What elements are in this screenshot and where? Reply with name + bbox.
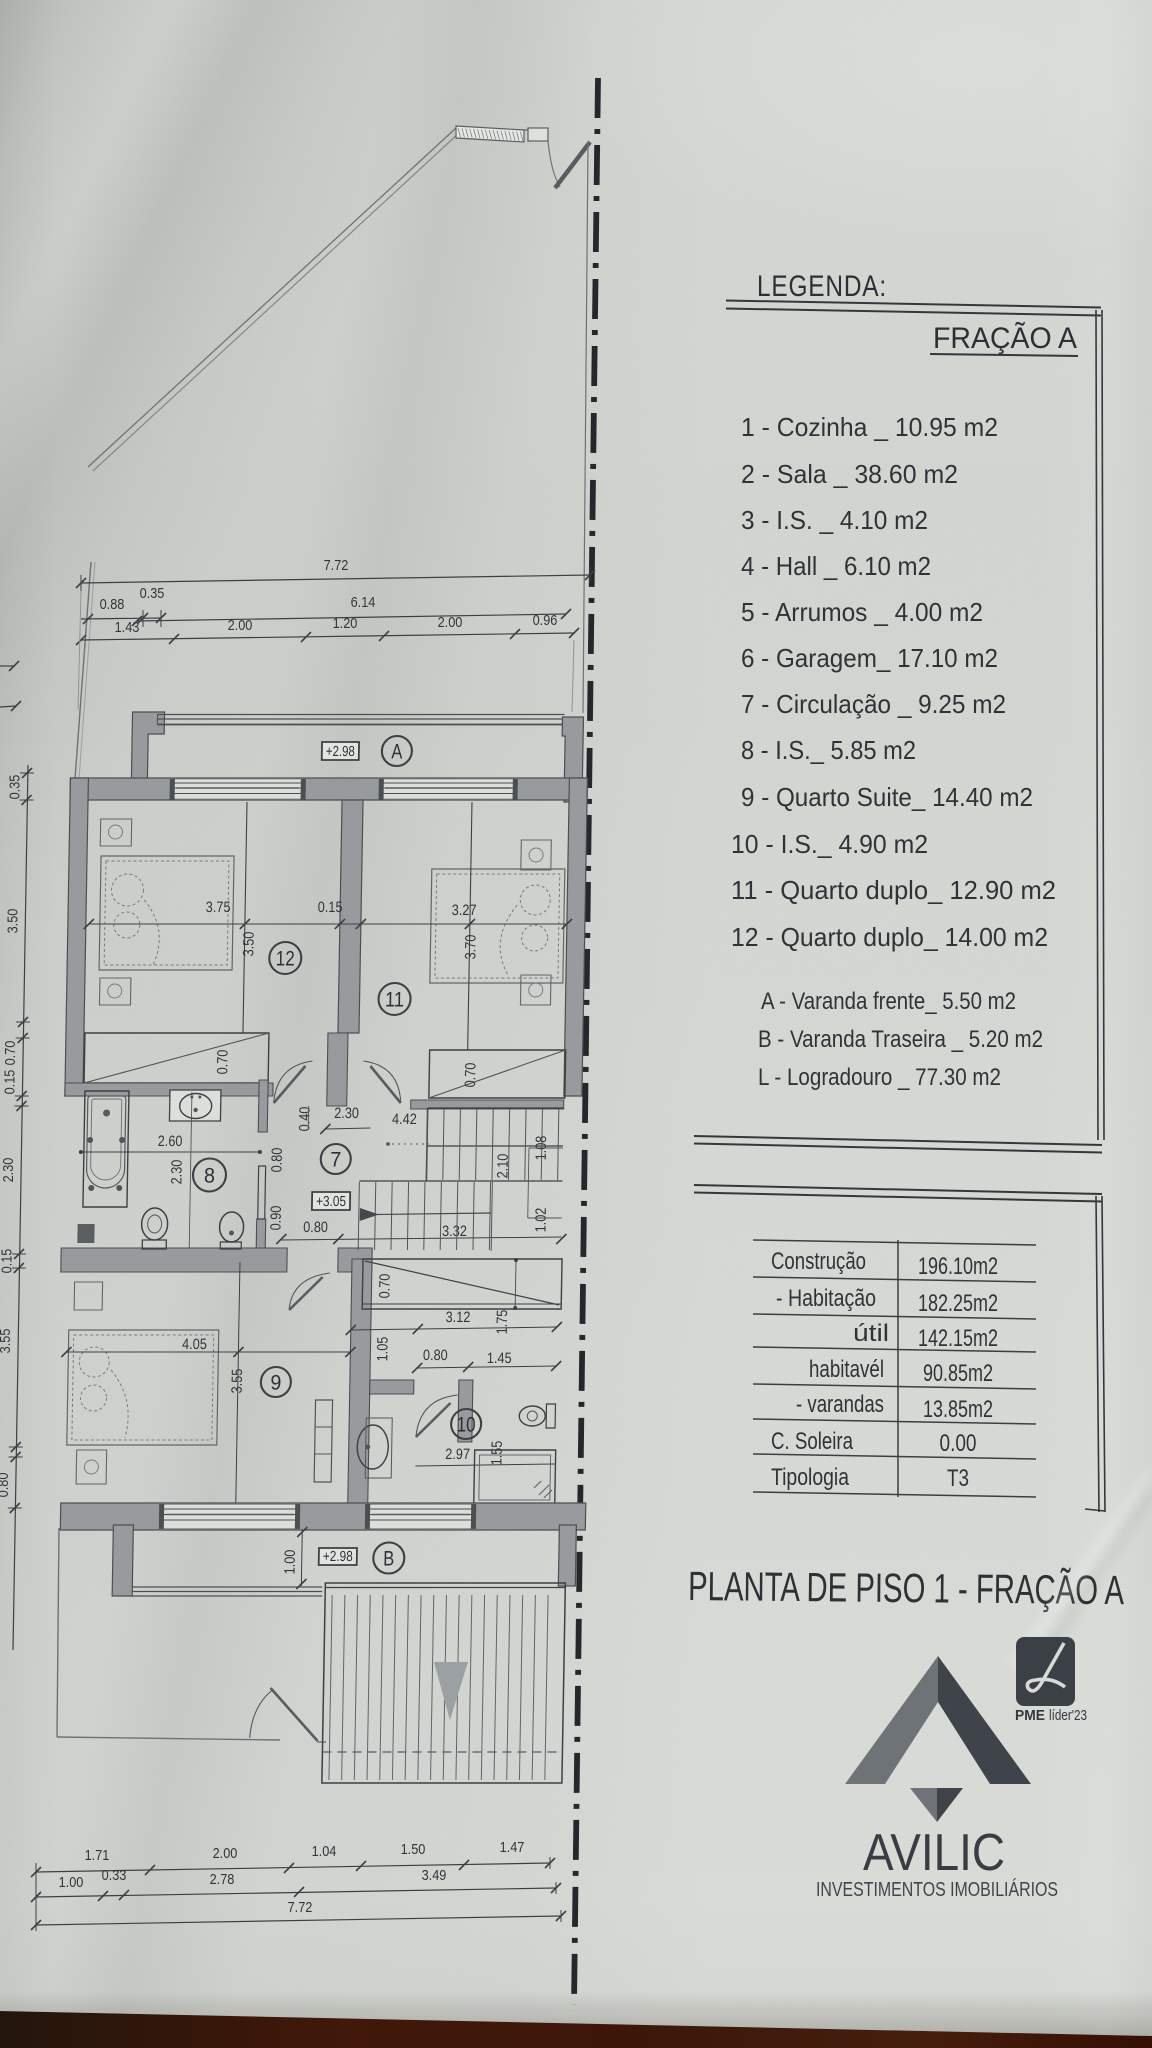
svg-text:C. Soleira: C. Soleira <box>771 1428 854 1455</box>
svg-text:1.08: 1.08 <box>533 1136 550 1161</box>
svg-text:4 - Hall _ 6.10 m2: 4 - Hall _ 6.10 m2 <box>741 551 931 581</box>
svg-text:Tipologia: Tipologia <box>771 1464 850 1491</box>
svg-text:1.20: 1.20 <box>333 615 358 632</box>
svg-text:8: 8 <box>204 1165 215 1188</box>
svg-text:5 - Arrumos _ 4.00 m2: 5 - Arrumos _ 4.00 m2 <box>741 597 983 627</box>
svg-text:1.45: 1.45 <box>487 1350 512 1367</box>
svg-text:0.15: 0.15 <box>0 1249 16 1274</box>
svg-text:1.05: 1.05 <box>374 1337 391 1362</box>
svg-text:2.10: 2.10 <box>494 1154 511 1179</box>
svg-text:0.80: 0.80 <box>269 1148 286 1173</box>
svg-text:142.15m2: 142.15m2 <box>918 1325 998 1352</box>
svg-text:FRAÇÃO A: FRAÇÃO A <box>933 321 1077 355</box>
svg-text:2.00: 2.00 <box>228 617 253 634</box>
svg-text:10 - I.S._ 4.90 m2: 10 - I.S._ 4.90 m2 <box>731 829 928 859</box>
svg-text:2.60: 2.60 <box>158 1133 183 1150</box>
svg-text:2.97: 2.97 <box>445 1446 470 1463</box>
svg-text:0.35: 0.35 <box>7 775 24 800</box>
svg-text:útil: útil <box>853 1320 889 1347</box>
svg-text:3.49: 3.49 <box>422 1867 447 1884</box>
svg-text:4.42: 4.42 <box>392 1111 417 1128</box>
svg-text:0.33: 0.33 <box>102 1867 127 1884</box>
svg-text:7: 7 <box>330 1149 341 1172</box>
svg-text:0.15: 0.15 <box>2 1070 19 1095</box>
svg-text:PME: PME <box>1015 1708 1045 1724</box>
svg-text:AVILIC: AVILIC <box>863 1824 1005 1882</box>
svg-text:0.80: 0.80 <box>0 1473 12 1498</box>
svg-text:1.47: 1.47 <box>500 1839 525 1856</box>
svg-text:3.12: 3.12 <box>445 1309 470 1326</box>
svg-text:2 - Sala _ 38.60 m2: 2 - Sala _ 38.60 m2 <box>741 459 958 489</box>
svg-text:habitavél: habitavél <box>809 1356 884 1383</box>
svg-text:0.70: 0.70 <box>376 1274 393 1299</box>
svg-text:A: A <box>391 741 402 764</box>
svg-text:10: 10 <box>456 1414 475 1437</box>
svg-text:12 - Quarto duplo_ 14.00 m2: 12 - Quarto duplo_ 14.00 m2 <box>731 922 1048 952</box>
svg-text:0.80: 0.80 <box>423 1347 448 1364</box>
svg-text:2.00: 2.00 <box>438 614 463 631</box>
svg-text:3.50: 3.50 <box>4 909 21 934</box>
svg-text:2.00: 2.00 <box>213 1845 238 1862</box>
svg-text:1.75: 1.75 <box>494 1310 511 1335</box>
svg-text:7.72: 7.72 <box>324 557 349 574</box>
svg-text:líder'23: líder'23 <box>1049 1708 1087 1724</box>
svg-text:0.40: 0.40 <box>296 1107 313 1132</box>
svg-text:9 - Quarto Suite_ 14.40 m2: 9 - Quarto Suite_ 14.40 m2 <box>741 782 1033 812</box>
svg-text:9: 9 <box>270 1372 281 1395</box>
svg-text:3.55: 3.55 <box>229 1369 246 1394</box>
svg-text:- varandas: - varandas <box>796 1391 884 1418</box>
svg-text:4.05: 4.05 <box>182 1336 207 1353</box>
svg-text:0.35: 0.35 <box>140 585 165 602</box>
svg-text:13.85m2: 13.85m2 <box>923 1396 993 1423</box>
svg-text:7 - Circulação _ 9.25 m2: 7 - Circulação _ 9.25 m2 <box>741 689 1006 719</box>
svg-text:A - Varanda frente_ 5.50 m2: A - Varanda frente_ 5.50 m2 <box>761 988 1016 1015</box>
svg-text:1.71: 1.71 <box>85 1847 110 1864</box>
svg-text:1.55: 1.55 <box>488 1441 505 1466</box>
svg-text:B - Varanda Traseira _ 5.20 m2: B - Varanda Traseira _ 5.20 m2 <box>758 1026 1043 1053</box>
svg-text:0.90: 0.90 <box>268 1206 285 1231</box>
svg-text:INVESTIMENTOS IMOBILIÁRIOS: INVESTIMENTOS IMOBILIÁRIOS <box>816 1878 1058 1901</box>
svg-text:L - Logradouro _ 77.30 m2: L - Logradouro _ 77.30 m2 <box>758 1064 1001 1091</box>
svg-text:3.75: 3.75 <box>206 899 231 916</box>
svg-text:1.43: 1.43 <box>115 619 140 636</box>
svg-text:11: 11 <box>385 989 404 1012</box>
svg-text:1.04: 1.04 <box>312 1843 337 1860</box>
svg-text:+3.05: +3.05 <box>316 1194 346 1210</box>
svg-text:0.70: 0.70 <box>2 1041 19 1066</box>
svg-text:2.30: 2.30 <box>334 1105 359 1122</box>
svg-text:6.14: 6.14 <box>351 594 376 611</box>
svg-text:0.70: 0.70 <box>214 1050 231 1075</box>
svg-text:12: 12 <box>276 948 295 971</box>
svg-text:0.80: 0.80 <box>303 1219 328 1236</box>
svg-text:182.25m2: 182.25m2 <box>918 1290 998 1317</box>
svg-text:2.78: 2.78 <box>210 1871 235 1888</box>
svg-text:0.88: 0.88 <box>100 596 125 613</box>
svg-text:3.55: 3.55 <box>0 1329 14 1354</box>
svg-text:2.30: 2.30 <box>168 1160 185 1185</box>
svg-text:+2.98: +2.98 <box>326 744 355 760</box>
svg-text:Construção: Construção <box>771 1248 866 1275</box>
svg-text:1.02: 1.02 <box>532 1208 549 1233</box>
svg-text:3.32: 3.32 <box>442 1223 467 1240</box>
svg-text:+2.98: +2.98 <box>323 1549 353 1565</box>
svg-text:3 - I.S. _ 4.10 m2: 3 - I.S. _ 4.10 m2 <box>741 505 928 535</box>
svg-text:1.00: 1.00 <box>59 1874 84 1891</box>
svg-text:B: B <box>383 1548 394 1571</box>
svg-text:11 - Quarto duplo_ 12.90 m2: 11 - Quarto duplo_ 12.90 m2 <box>731 875 1056 905</box>
svg-text:- Habitação: - Habitação <box>776 1285 876 1312</box>
svg-text:LEGENDA:: LEGENDA: <box>757 270 887 303</box>
svg-text:6 - Garagem_ 17.10 m2: 6 - Garagem_ 17.10 m2 <box>741 643 998 673</box>
svg-text:3.70: 3.70 <box>462 935 479 960</box>
svg-text:0.70: 0.70 <box>462 1063 479 1088</box>
svg-text:3.27: 3.27 <box>452 902 477 919</box>
svg-text:0.96: 0.96 <box>533 612 558 629</box>
svg-text:0.15: 0.15 <box>318 899 343 916</box>
svg-text:2.30: 2.30 <box>0 1158 17 1183</box>
svg-text:0.00: 0.00 <box>940 1430 977 1457</box>
svg-text:1.50: 1.50 <box>401 1841 426 1858</box>
svg-text:T3: T3 <box>947 1465 969 1492</box>
svg-text:8 - I.S._ 5.85 m2: 8 - I.S._ 5.85 m2 <box>741 735 916 765</box>
svg-text:196.10m2: 196.10m2 <box>918 1253 998 1280</box>
svg-text:7.72: 7.72 <box>288 1899 313 1916</box>
svg-text:90.85m2: 90.85m2 <box>923 1360 993 1387</box>
svg-text:1 - Cozinha _ 10.95 m2: 1 - Cozinha _ 10.95 m2 <box>741 412 998 442</box>
svg-text:1.00: 1.00 <box>282 1550 299 1575</box>
svg-text:3.50: 3.50 <box>240 932 257 957</box>
